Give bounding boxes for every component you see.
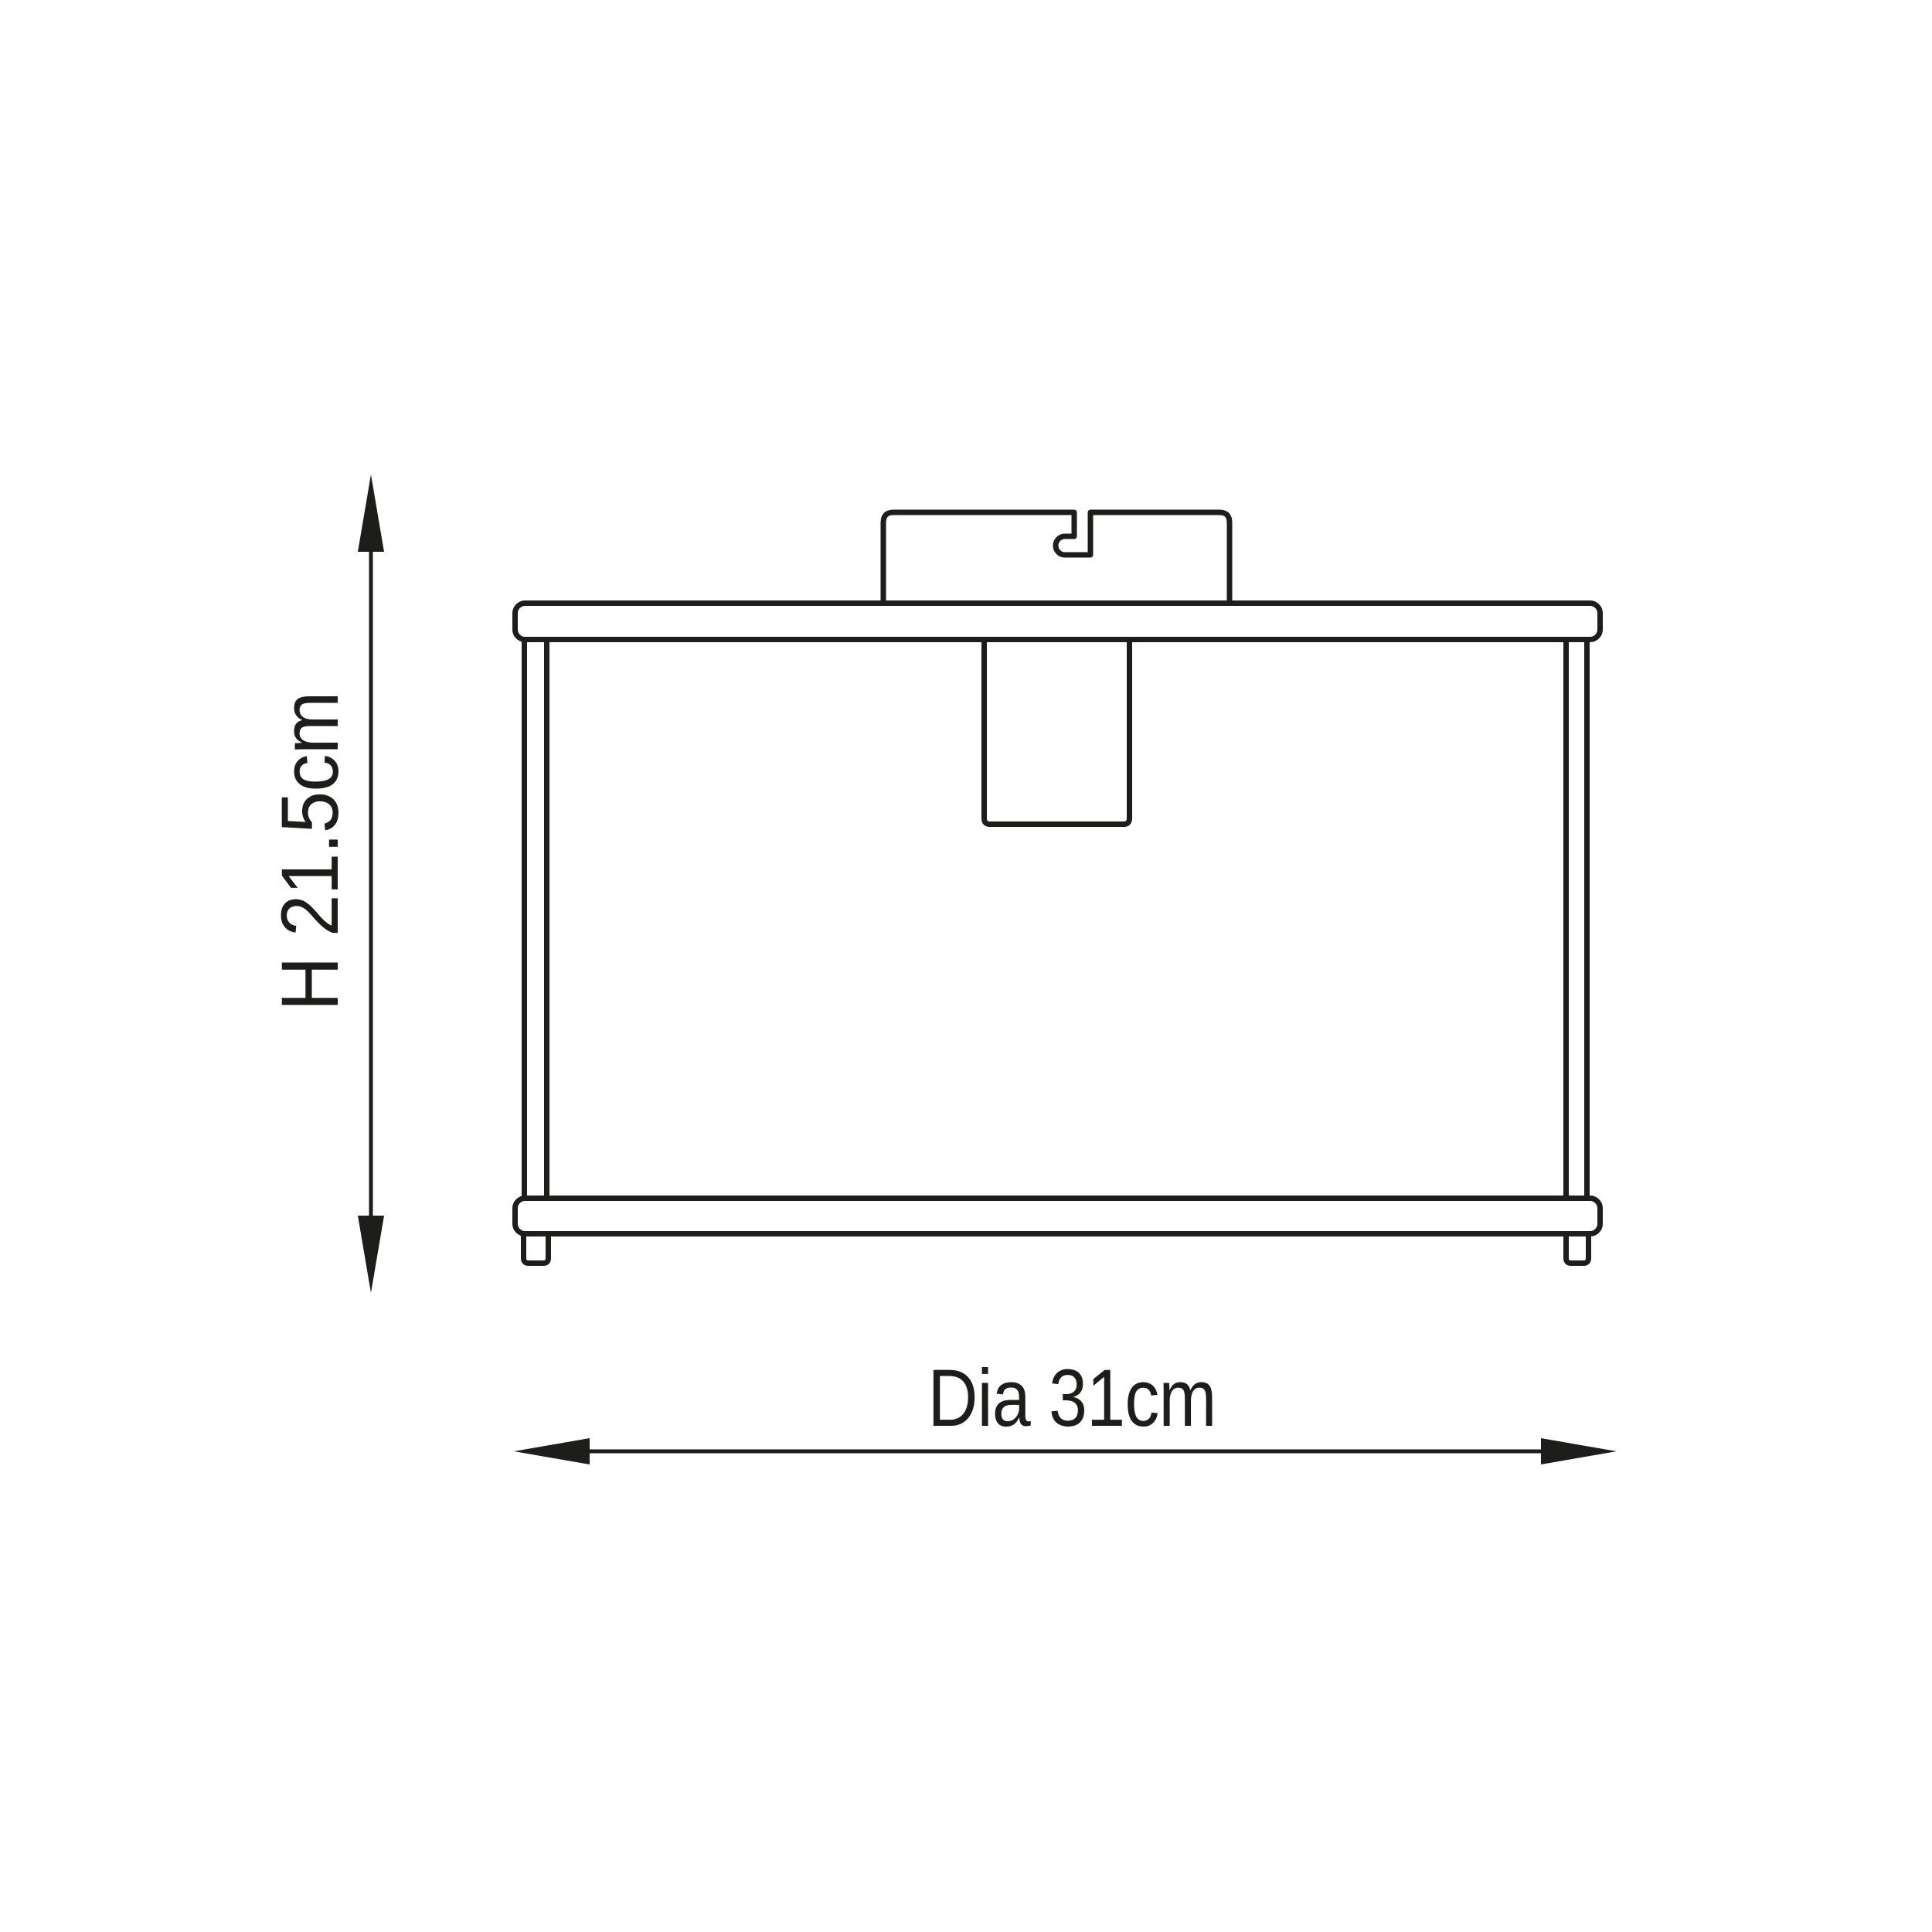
bottom-frame-plate	[515, 1199, 1600, 1234]
arrow-down-icon	[358, 1216, 384, 1293]
right-foot	[1566, 1234, 1589, 1264]
left-foot	[524, 1234, 549, 1264]
arrow-right-icon	[1541, 1438, 1617, 1464]
height-dimension-label: H 21.5cm	[265, 692, 355, 1012]
height-dimension: H 21.5cm	[265, 474, 384, 1293]
diagram-canvas: H 21.5cm Dia 31cm	[0, 0, 1932, 1932]
left-frame-post	[525, 640, 547, 1198]
right-frame-post	[1566, 640, 1587, 1198]
arrow-up-icon	[358, 474, 384, 552]
lamp-holder	[985, 640, 1130, 825]
diameter-dimension: Dia 31cm	[514, 1353, 1617, 1464]
arrow-left-icon	[514, 1438, 590, 1464]
ceiling-mount-box-with-keyhole-slot	[883, 512, 1230, 604]
fixture-outline-group	[515, 512, 1600, 1264]
top-frame-plate	[515, 604, 1600, 640]
diameter-dimension-label: Dia 31cm	[928, 1353, 1216, 1444]
fixture-dimension-diagram: H 21.5cm Dia 31cm	[0, 0, 1932, 1932]
